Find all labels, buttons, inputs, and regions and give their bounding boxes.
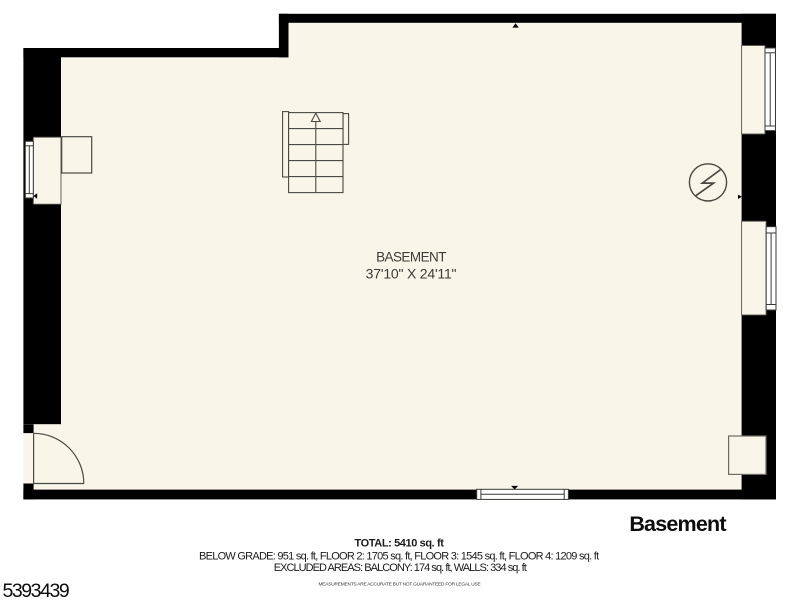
svg-text:5393439: 5393439 (3, 580, 69, 600)
svg-text:37'10" X 24'11": 37'10" X 24'11" (366, 265, 457, 281)
svg-text:Basement: Basement (629, 512, 726, 536)
svg-text:EXCLUDED AREAS: BALCONY: 174 s: EXCLUDED AREAS: BALCONY: 174 sq. ft, WAL… (274, 562, 527, 574)
svg-text:TOTAL: 5410 sq. ft: TOTAL: 5410 sq. ft (355, 537, 445, 549)
svg-text:BELOW GRADE: 951 sq. ft, FLOOR: BELOW GRADE: 951 sq. ft, FLOOR 2: 1705 s… (199, 551, 599, 563)
svg-text:MEASUREMENTS ARE ACCURATE BUT: MEASUREMENTS ARE ACCURATE BUT NOT GUARAN… (319, 582, 481, 588)
svg-text:BASEMENT: BASEMENT (376, 249, 446, 264)
